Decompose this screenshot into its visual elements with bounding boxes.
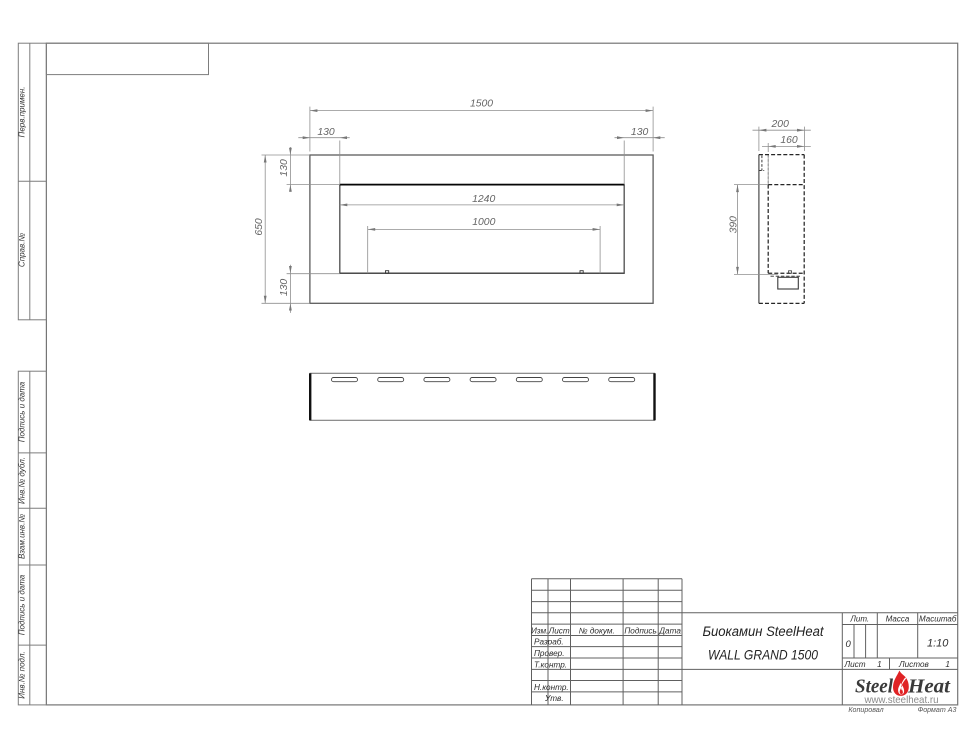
svg-text:WALL GRAND 1500: WALL GRAND 1500 xyxy=(708,646,818,662)
svg-text:130: 130 xyxy=(279,159,290,177)
svg-text:№ докум.: № докум. xyxy=(579,626,615,635)
svg-text:1:10: 1:10 xyxy=(927,637,949,649)
svg-text:390: 390 xyxy=(728,216,739,234)
svg-text:Т.контр.: Т.контр. xyxy=(534,660,567,669)
svg-text:Листов: Листов xyxy=(898,660,930,669)
svg-text:Подпись: Подпись xyxy=(624,626,656,635)
svg-text:Копировал: Копировал xyxy=(848,706,883,714)
svg-text:1240: 1240 xyxy=(472,194,495,205)
svg-text:130: 130 xyxy=(631,127,649,138)
svg-text:Утв.: Утв. xyxy=(544,694,564,703)
svg-text:Изм.: Изм. xyxy=(531,626,548,635)
svg-text:Н.контр.: Н.контр. xyxy=(534,683,569,692)
svg-text:200: 200 xyxy=(771,119,790,130)
svg-text:1: 1 xyxy=(945,660,950,669)
svg-text:Лит.: Лит. xyxy=(849,615,869,624)
svg-text:Лист: Лист xyxy=(843,660,865,669)
svg-text:Масштаб: Масштаб xyxy=(919,615,957,624)
svg-text:1: 1 xyxy=(877,660,882,669)
svg-text:Масса: Масса xyxy=(886,615,910,624)
svg-text:Перв.примен.: Перв.примен. xyxy=(18,87,27,138)
svg-text:0: 0 xyxy=(846,639,852,650)
svg-text:130: 130 xyxy=(317,127,335,138)
svg-text:1000: 1000 xyxy=(472,217,495,228)
svg-text:130: 130 xyxy=(279,279,290,297)
svg-text:Справ.№: Справ.№ xyxy=(18,233,27,267)
svg-text:Разраб.: Разраб. xyxy=(534,638,564,647)
svg-text:www.steelheat.ru: www.steelheat.ru xyxy=(864,694,939,706)
svg-text:160: 160 xyxy=(780,135,798,146)
svg-text:Лист: Лист xyxy=(548,626,570,635)
svg-text:Инв.№ дубл.: Инв.№ дубл. xyxy=(18,457,27,504)
svg-text:Провер.: Провер. xyxy=(534,649,565,658)
svg-text:Подпись и дата: Подпись и дата xyxy=(18,381,27,442)
svg-text:Подпись и дата: Подпись и дата xyxy=(18,574,27,635)
svg-text:Формат А3: Формат А3 xyxy=(918,706,957,714)
svg-text:Взам.инв.№: Взам.инв.№ xyxy=(18,514,27,559)
svg-text:Биокамин SteelHeat: Биокамин SteelHeat xyxy=(703,624,825,639)
svg-text:650: 650 xyxy=(254,218,265,236)
svg-text:Дата: Дата xyxy=(658,626,681,635)
svg-text:1500: 1500 xyxy=(470,98,493,109)
svg-text:Инв.№ подл.: Инв.№ подл. xyxy=(18,651,27,698)
